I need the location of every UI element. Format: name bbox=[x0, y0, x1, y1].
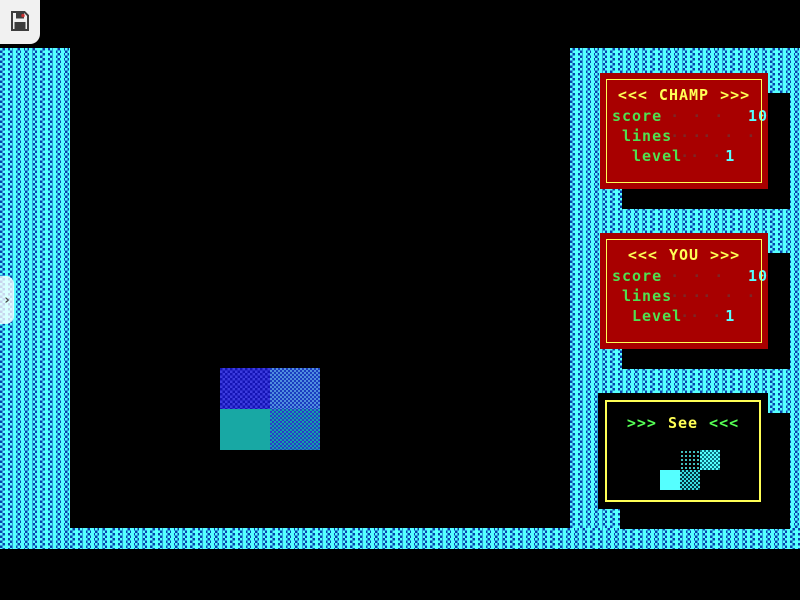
next-piece-cell bbox=[680, 450, 700, 470]
next-piece-cell bbox=[660, 470, 680, 490]
next-piece-cell bbox=[700, 450, 720, 470]
floppy-disk-icon bbox=[8, 9, 32, 36]
champ-level-value: 1 bbox=[725, 146, 735, 166]
angle-right-icon: >>> bbox=[720, 86, 750, 104]
falling-piece-cell-teal-dither bbox=[270, 409, 320, 450]
champ-lines-row: lines · · · · · bbox=[600, 126, 768, 146]
champ-lines-label: lines bbox=[622, 126, 672, 146]
champ-title-text: CHAMP bbox=[659, 86, 709, 104]
you-level-label: Level bbox=[632, 306, 682, 326]
champ-panel: <<< CHAMP >>> score · · · · · 10 lines ·… bbox=[600, 73, 768, 189]
dots-separator: · · bbox=[690, 146, 723, 166]
angle-left-icon: <<< bbox=[628, 246, 658, 264]
you-score-row: score · · · · · 10 bbox=[600, 266, 768, 286]
falling-piece-cell-blue-light bbox=[270, 368, 320, 409]
champ-panel-title: <<< CHAMP >>> bbox=[600, 86, 768, 104]
dots-separator: · · bbox=[690, 306, 723, 326]
side-panel-toggle-button[interactable]: › bbox=[0, 276, 14, 324]
you-title-text: YOU bbox=[669, 246, 699, 264]
you-panel-title: <<< YOU >>> bbox=[600, 246, 768, 264]
playfield-border-bottom bbox=[70, 528, 800, 549]
you-lines-row: lines · · · · · bbox=[600, 286, 768, 306]
champ-score-value: 10 bbox=[748, 106, 768, 126]
you-panel: <<< YOU >>> score · · · · · 10 lines · ·… bbox=[600, 233, 768, 349]
see-panel-title: >>> See <<< bbox=[598, 406, 768, 432]
angle-left-icon: <<< bbox=[709, 414, 739, 432]
you-lines-label: lines bbox=[622, 286, 672, 306]
chevron-right-icon: › bbox=[4, 293, 9, 308]
champ-level-label: level bbox=[632, 146, 682, 166]
you-score-value: 10 bbox=[748, 266, 768, 286]
angle-right-icon: >>> bbox=[710, 246, 740, 264]
angle-right-icon: >>> bbox=[627, 414, 657, 432]
you-level-value: 1 bbox=[725, 306, 735, 326]
next-piece-cell bbox=[680, 470, 700, 490]
save-button[interactable] bbox=[0, 0, 40, 44]
champ-score-row: score · · · · · 10 bbox=[600, 106, 768, 126]
angle-left-icon: <<< bbox=[618, 86, 648, 104]
you-score-label: score bbox=[612, 266, 662, 286]
game-screen: <<< CHAMP >>> score · · · · · 10 lines ·… bbox=[0, 0, 800, 600]
falling-piece-cell-blue-dark bbox=[220, 368, 270, 409]
next-piece-panel: >>> See <<< bbox=[598, 393, 768, 509]
champ-score-label: score bbox=[612, 106, 662, 126]
see-title-text: See bbox=[668, 414, 698, 432]
falling-piece-cell-teal-solid bbox=[220, 409, 270, 450]
